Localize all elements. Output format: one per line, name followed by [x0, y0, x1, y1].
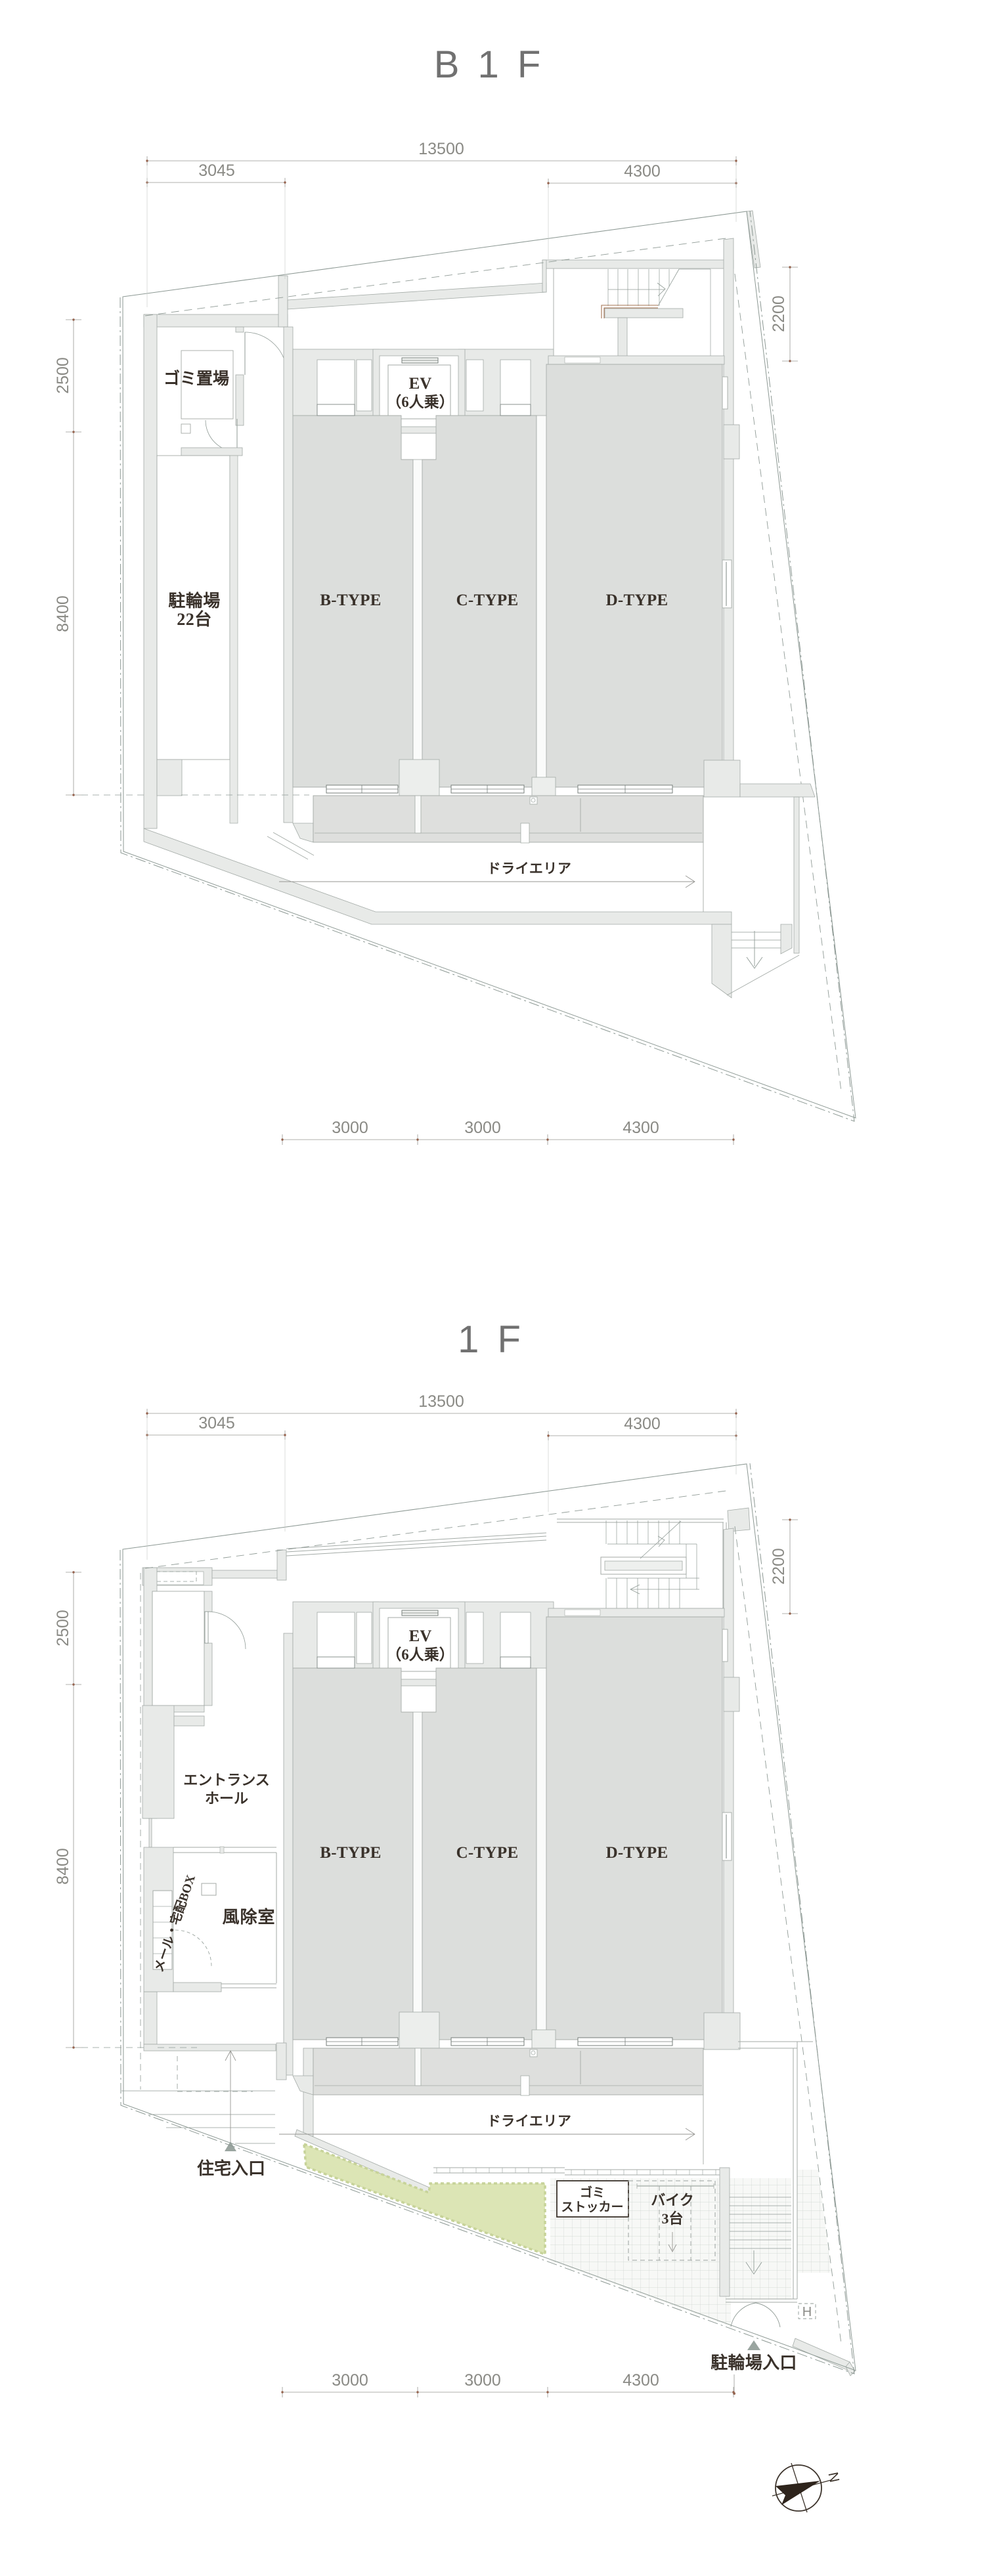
- svg-text:8400: 8400: [54, 1848, 72, 1885]
- svg-text:住宅入口: 住宅入口: [197, 2158, 265, 2178]
- svg-text:3台: 3台: [661, 2210, 683, 2227]
- svg-text:B-TYPE: B-TYPE: [320, 591, 381, 609]
- svg-text:B 1 F: B 1 F: [434, 43, 545, 86]
- svg-text:2500: 2500: [54, 357, 72, 394]
- svg-text:（6人乗）: （6人乗）: [386, 1646, 454, 1663]
- svg-text:22台: 22台: [177, 609, 212, 629]
- svg-text:ホール: ホール: [205, 1790, 248, 1807]
- svg-text:D-TYPE: D-TYPE: [606, 1844, 668, 1862]
- svg-text:2200: 2200: [770, 295, 788, 332]
- svg-text:4300: 4300: [624, 162, 661, 181]
- svg-text:4300: 4300: [624, 1415, 661, 1433]
- svg-text:4300: 4300: [623, 2371, 659, 2390]
- svg-text:EV: EV: [409, 1627, 432, 1645]
- svg-text:3045: 3045: [198, 1414, 235, 1432]
- svg-text:ドライエリア: ドライエリア: [487, 2113, 572, 2129]
- svg-text:駐輪場: 駐輪場: [168, 591, 221, 611]
- svg-text:エントランス: エントランス: [183, 1772, 270, 1788]
- svg-text:C-TYPE: C-TYPE: [456, 1844, 519, 1862]
- svg-text:13500: 13500: [418, 140, 464, 158]
- svg-text:3000: 3000: [332, 2371, 368, 2390]
- svg-text:EV: EV: [409, 375, 432, 393]
- svg-text:ゴミ: ゴミ: [580, 2185, 605, 2200]
- svg-text:ストッカー: ストッカー: [561, 2200, 623, 2214]
- svg-text:4300: 4300: [623, 1119, 659, 1137]
- svg-text:駐輪場入口: 駐輪場入口: [711, 2353, 797, 2372]
- svg-text:（6人乗）: （6人乗）: [386, 393, 454, 410]
- svg-text:風除室: 風除室: [222, 1907, 275, 1927]
- svg-text:H: H: [802, 2305, 812, 2319]
- svg-text:3000: 3000: [332, 1119, 368, 1137]
- svg-text:1 F: 1 F: [458, 1318, 525, 1361]
- svg-text:3045: 3045: [198, 161, 235, 180]
- svg-text:2500: 2500: [54, 1610, 72, 1646]
- svg-text:バイク: バイク: [651, 2192, 694, 2208]
- svg-text:13500: 13500: [418, 1392, 464, 1411]
- svg-text:3000: 3000: [464, 1119, 501, 1137]
- svg-text:C-TYPE: C-TYPE: [456, 591, 519, 609]
- svg-text:B-TYPE: B-TYPE: [320, 1844, 381, 1862]
- svg-text:3000: 3000: [464, 2371, 501, 2390]
- svg-text:8400: 8400: [54, 595, 72, 632]
- svg-text:ドライエリア: ドライエリア: [487, 861, 572, 876]
- svg-text:ゴミ置場: ゴミ置場: [164, 369, 229, 388]
- svg-text:2200: 2200: [770, 1548, 788, 1585]
- svg-text:D-TYPE: D-TYPE: [606, 591, 668, 609]
